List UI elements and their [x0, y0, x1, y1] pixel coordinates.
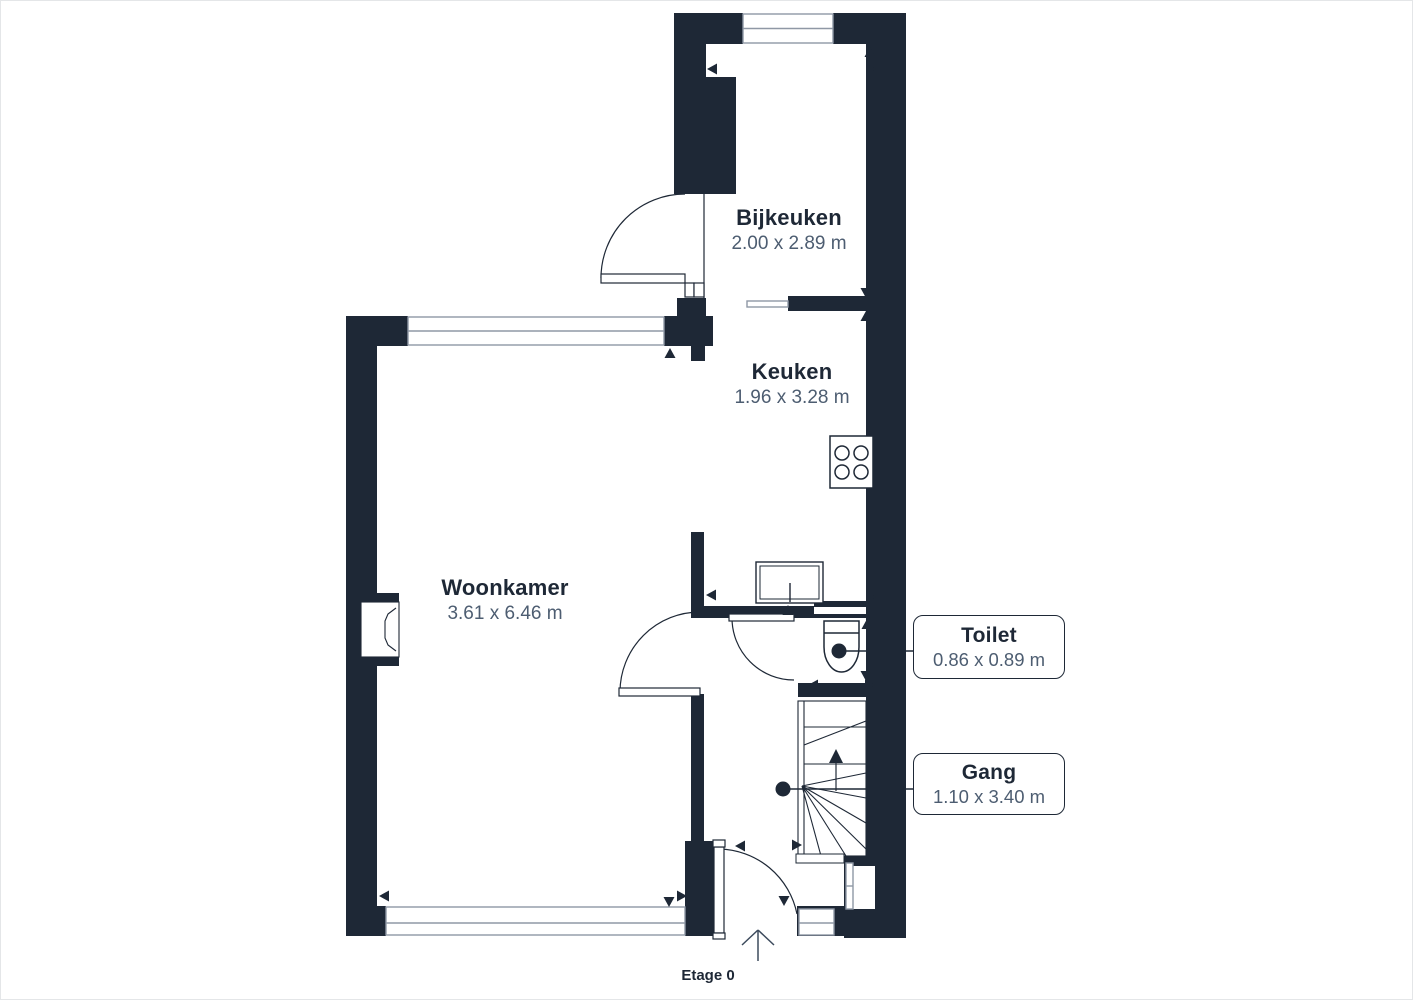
chimney-bottom — [346, 657, 399, 666]
wall-bijkeuken-keuken — [788, 296, 868, 311]
windows — [386, 14, 853, 935]
room-dimensions: 1.10 x 3.40 m — [933, 785, 1045, 809]
room-callout-toilet: Toilet 0.86 x 0.89 m — [913, 615, 1065, 679]
wall-toilet-door-sliver-bottom — [814, 614, 868, 618]
wall-bijkeuken-west — [674, 13, 736, 194]
sink-icon — [756, 562, 823, 603]
room-callout-gang: Gang 1.10 x 3.40 m — [913, 753, 1065, 815]
gang-leader-dot — [776, 782, 791, 797]
wall-south-left — [346, 906, 386, 936]
entrance-arrow-icon — [742, 930, 774, 961]
window-entry-side — [846, 863, 853, 909]
floorplan-drawing — [1, 1, 1412, 999]
wall-interior-bottom-block — [685, 841, 714, 936]
room-name: Toilet — [961, 623, 1017, 648]
floorplan-canvas: Bijkeuken 2.00 x 2.89 m Keuken 1.96 x 3.… — [0, 0, 1413, 1000]
door-woonkamer-interior — [619, 612, 700, 696]
door-front-entry — [713, 840, 797, 939]
window-woonkamer-south — [386, 907, 685, 935]
chimney-niche — [361, 602, 399, 657]
stove-icon — [830, 436, 873, 488]
wall-woonkamer-north-right — [664, 316, 713, 346]
window-entry-south — [799, 909, 834, 935]
stairs — [796, 701, 866, 863]
wall-notch-southeast — [853, 866, 875, 909]
door-bijkeuken-exterior — [601, 194, 704, 298]
wall-notch-bijkeuken — [706, 44, 743, 77]
toilet-leader-dot — [832, 644, 847, 659]
window-bijkeuken-north — [743, 14, 833, 43]
room-name: Gang — [962, 760, 1016, 785]
keuken-slider-panel — [747, 301, 788, 307]
window-woonkamer-north — [408, 317, 664, 345]
wall-interior-upper — [691, 532, 704, 616]
stairs-landing — [796, 854, 844, 863]
wall-corner-bijkeuken-door — [677, 298, 706, 318]
floor-level-label: Etage 0 — [681, 967, 734, 984]
chimney-top — [346, 593, 399, 602]
wall-foot — [691, 346, 705, 361]
room-dimensions: 0.86 x 0.89 m — [933, 648, 1045, 672]
wall-interior-lower — [691, 694, 704, 841]
fixtures — [756, 436, 873, 672]
door-toilet — [729, 614, 794, 680]
